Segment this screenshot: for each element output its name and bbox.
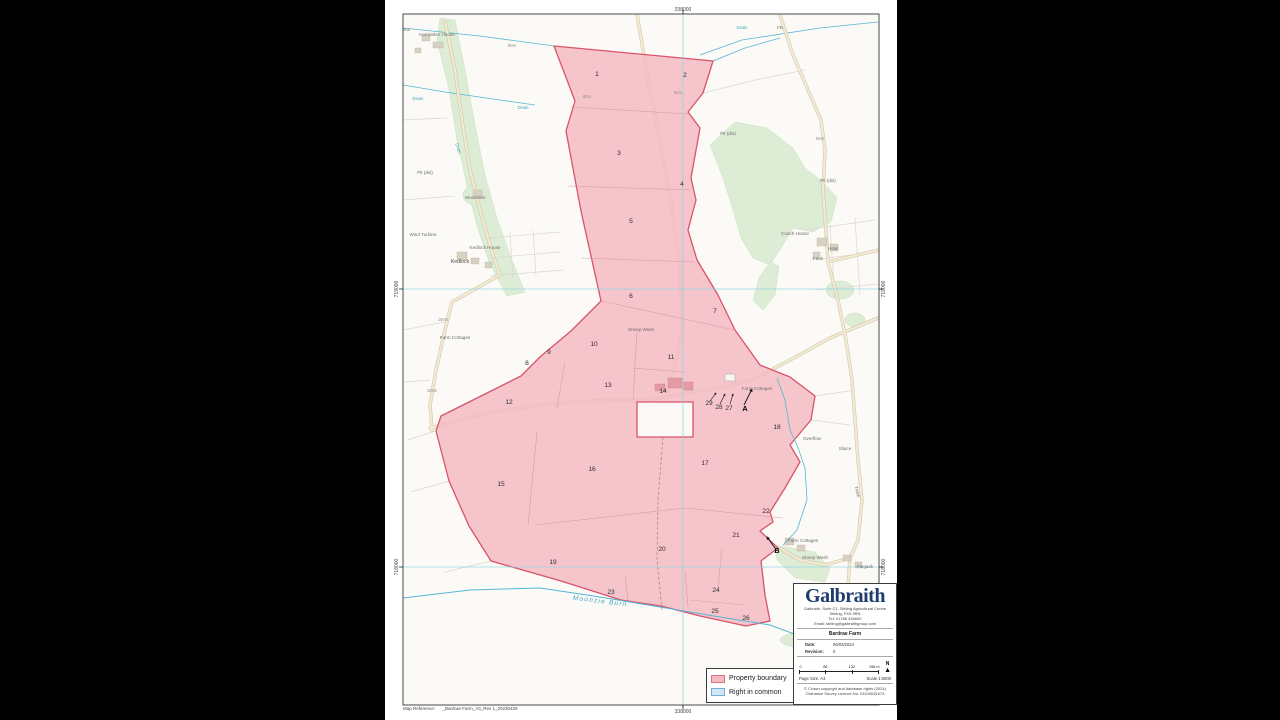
parcel-label-21: 21 [732, 532, 740, 539]
parcel-label-B: B [774, 546, 779, 555]
map-label-pit-dis-: Pit (dis) [820, 178, 836, 183]
parcel-label-25: 25 [711, 608, 719, 615]
parcel-label-5: 5 [629, 218, 633, 225]
parcel-label-23: 23 [607, 589, 615, 596]
legend: Property boundary Right in common [706, 668, 794, 703]
map-label-65m: 65m [816, 136, 825, 141]
revision-value: 0 [833, 649, 835, 654]
parcel-label-17: 17 [701, 460, 709, 467]
parcel-label-26: 26 [742, 615, 750, 622]
scale-bar-tick [799, 670, 800, 674]
legend-label-right-in-common: Right in common [729, 689, 782, 696]
scale-tick-1: 66 [823, 665, 827, 669]
legend-item-property-boundary: Property boundary [711, 675, 789, 683]
parcel-label-9: 9 [547, 349, 551, 356]
map-label-fingask: Fingask [857, 564, 874, 569]
parcel-label-28: 28 [715, 404, 723, 411]
map-label-90m: 90m [508, 43, 517, 48]
parcel-label-4: 4 [680, 181, 684, 188]
scale-tick-0: 0 [800, 665, 802, 669]
parcel-label-12: 12 [505, 399, 513, 406]
map-reference-text: Map Reference: _Bardrae Farm_A3_Rev 1_20… [403, 706, 518, 711]
parcel-label-3: 3 [617, 150, 621, 157]
coord-right-bottom: 718000 [881, 558, 887, 575]
parcel-label-22: 22 [762, 508, 770, 515]
map-label-kedlock-house: Kedlock House [470, 245, 501, 250]
map-label-coach-house: Coach House [781, 231, 809, 236]
parcel-label-8: 8 [525, 360, 529, 367]
map-label-feus: Feus [813, 256, 824, 261]
parcel-label-14: 14 [659, 388, 667, 395]
coord-left-top: 719000 [394, 280, 400, 297]
coord-bottom: 338000 [675, 709, 692, 715]
copyright-line-2: Ordnance Survey Licence No. 01100031673 [797, 691, 893, 696]
scale-text: Scale 1:6000 [867, 676, 891, 681]
scale-bar-line [799, 671, 879, 672]
map-label-kerrielden-house: Kerrielden House [419, 32, 455, 37]
map-label-100m: 100m [438, 317, 449, 322]
map-label-farm-cottages: Farm Cottages [440, 335, 471, 340]
scale-tick-2: 132 [849, 665, 855, 669]
legend-item-right-in-common: Right in common [711, 688, 789, 696]
map-label-drain: Drain [737, 25, 748, 30]
parcel-label-27: 27 [725, 405, 733, 412]
parcel-label-24: 24 [712, 587, 720, 594]
parcel-label-19: 19 [549, 559, 557, 566]
parcel-label-2: 2 [683, 72, 687, 79]
map-label-kedlock: Kedlock [451, 259, 470, 265]
map-info-box: Galbraith Galbraith, Suite C1, Stirling … [793, 583, 897, 705]
scale-tick-3: 198 m [869, 665, 880, 669]
coord-left-bottom: 718000 [394, 558, 400, 575]
legend-swatch-property-boundary [711, 675, 725, 683]
parcel-label-15: 15 [497, 481, 505, 488]
map-label-sluice: Sluice [839, 446, 852, 451]
revision-row: Revision: 0 [805, 649, 893, 654]
map-label-farm-cottages: Farm Cottages [788, 538, 819, 543]
parcel-label-18: 18 [773, 424, 781, 431]
screen: { "map": { "coords": { "top": "338000", … [0, 0, 1280, 720]
map-label-sheep-wash: Sheep Wash [802, 555, 829, 560]
map-label-sheep-wash: Sheep Wash [628, 327, 655, 332]
farm-cottages-building [725, 374, 735, 381]
scale-bar-tick [825, 670, 826, 674]
farm-title: Bardrae Farm [797, 631, 893, 637]
map-label-103m: 103m [427, 388, 438, 393]
parcel-label-16: 16 [588, 466, 596, 473]
map-label-pit-dis-: Pit (dis) [720, 131, 736, 136]
divider [797, 628, 893, 629]
page-size-scale-row: Page Size: A3 Scale 1:6000 [799, 676, 891, 681]
parcel-label-11: 11 [668, 354, 675, 361]
map-label-drain: Drain [413, 96, 424, 101]
map-sheet: FeusKerrielden HouseFBDrainDrainDrainDra… [385, 0, 897, 720]
map-label-fb: FB [777, 25, 783, 30]
revision-label: Revision: [805, 649, 833, 654]
page-size: Page Size: A3 [799, 676, 825, 681]
date-value: 06/03/2024 [833, 642, 854, 647]
parcel-label-7: 7 [713, 308, 717, 315]
parcel-label-20: 20 [658, 546, 666, 553]
map-label-woodside: Woodside [465, 195, 486, 200]
divider [797, 639, 893, 640]
scale-bar-track: 0 66 132 198 m [799, 664, 879, 674]
scale-bar-tick [852, 670, 853, 674]
map-label-hotel: Hotel [828, 246, 839, 251]
map-label-drain: Drain [518, 105, 529, 110]
map-label-farm-cottages: Farm Cottages [742, 386, 773, 391]
north-arrow: N ▲ [884, 662, 891, 674]
map-label-92m: 92m [674, 90, 683, 95]
parcel-label-13: 13 [604, 382, 612, 389]
map-label-pit-dis-: Pit (dis) [417, 170, 433, 175]
parcel-label-10: 10 [590, 341, 598, 348]
date-row: Date: 06/03/2024 [805, 642, 893, 647]
parcel-label-29: 29 [705, 400, 713, 407]
parcel-label-1: 1 [595, 71, 599, 78]
map-label-feus: Feus [400, 27, 411, 32]
map-label-overflow: Overflow [803, 436, 822, 441]
address-line-4: Email: stirling@galbraithgroup.com [797, 621, 893, 626]
map-label-wind-turbine: Wind Turbine [409, 232, 437, 237]
scale-bar: 0 66 132 198 m N ▲ [799, 662, 891, 674]
coord-top: 338000 [675, 7, 692, 13]
map-label-93m: 93m [583, 94, 592, 99]
coord-right-top: 719000 [881, 280, 887, 297]
legend-swatch-right-in-common [711, 688, 725, 696]
galbraith-logo: Galbraith [797, 586, 893, 606]
date-label: Date: [805, 642, 833, 647]
north-arrow-icon: ▲ [884, 667, 891, 674]
scale-bar-tick [878, 670, 879, 674]
legend-label-property-boundary: Property boundary [729, 675, 787, 682]
parcel-label-A: A [742, 404, 747, 413]
divider [797, 683, 893, 684]
parcel-label-6: 6 [629, 293, 633, 300]
divider [797, 656, 893, 657]
